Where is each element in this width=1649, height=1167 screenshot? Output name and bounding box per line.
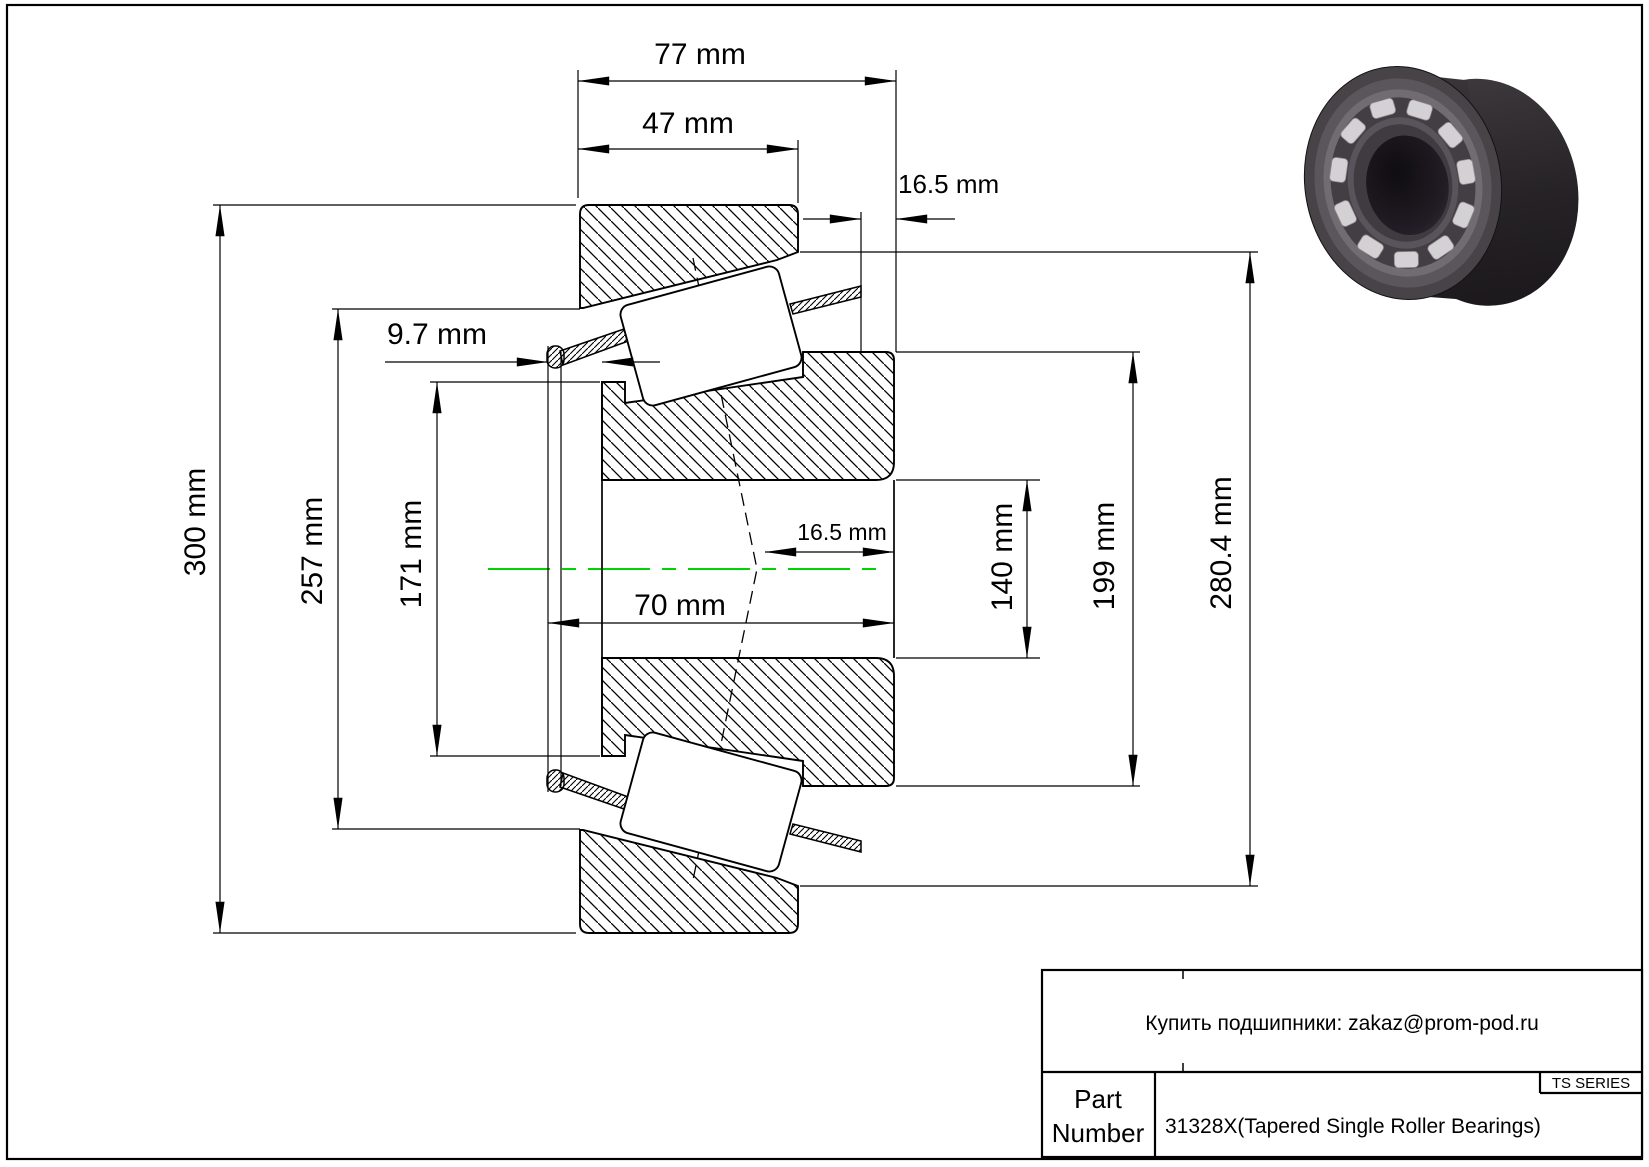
part-number-value: 31328X(Tapered Single Roller Bearings): [1165, 1115, 1541, 1138]
series-label: TS SERIES: [1552, 1075, 1630, 1092]
dim-center-offset-label: 16.5 mm: [797, 519, 886, 545]
dim-outer-diameter: 300 mm: [179, 205, 220, 933]
title-block: Купить подшипники: zakaz@prom-pod.ru TS …: [1042, 970, 1642, 1157]
dim-outer-diameter-label: 300 mm: [179, 468, 212, 576]
dim-width-total-label: 77 mm: [654, 38, 746, 71]
bearing-3d-render: [1286, 38, 1596, 335]
dim-cone-width-label: 70 mm: [634, 589, 726, 622]
dim-standout-top: 16.5 mm: [803, 169, 999, 219]
dim-cup-race-dia: 257 mm: [296, 309, 338, 829]
dim-cone-rib-dia-label: 199 mm: [1088, 502, 1121, 610]
dim-cage-standout-label: 9.7 mm: [387, 318, 487, 351]
dim-width-total: 77 mm: [578, 38, 896, 81]
dim-cup-race-dia-label: 257 mm: [296, 497, 329, 605]
dim-center-offset: 16.5 mm: [765, 519, 894, 552]
dim-cup-width-label: 47 mm: [642, 107, 734, 140]
dim-cup-bore-dia: 280.4 mm: [1205, 252, 1250, 886]
contact-text: Купить подшипники: zakaz@prom-pod.ru: [1145, 1012, 1539, 1035]
dim-cup-bore-dia-label: 280.4 mm: [1205, 476, 1238, 609]
dim-standout-top-label: 16.5 mm: [898, 169, 999, 199]
part-number-label-line2: Number: [1052, 1118, 1145, 1148]
bearing-drawing-svg: 77 mm 47 mm 16.5 mm 9.7 mm 300 mm 257 mm…: [0, 0, 1649, 1167]
dim-bore-diameter-label: 140 mm: [986, 503, 1019, 611]
drawing-sheet: 77 mm 47 mm 16.5 mm 9.7 mm 300 mm 257 mm…: [0, 0, 1649, 1167]
part-number-label-line1: Part: [1074, 1084, 1122, 1114]
dim-cup-width: 47 mm: [578, 107, 798, 149]
dim-cone-front-dia: 171 mm: [395, 382, 437, 756]
dim-cone-width: 70 mm: [548, 589, 894, 623]
dim-cone-rib-dia: 199 mm: [1088, 352, 1133, 786]
dim-bore-diameter: 140 mm: [986, 480, 1027, 658]
dim-cone-front-dia-label: 171 mm: [395, 500, 428, 608]
